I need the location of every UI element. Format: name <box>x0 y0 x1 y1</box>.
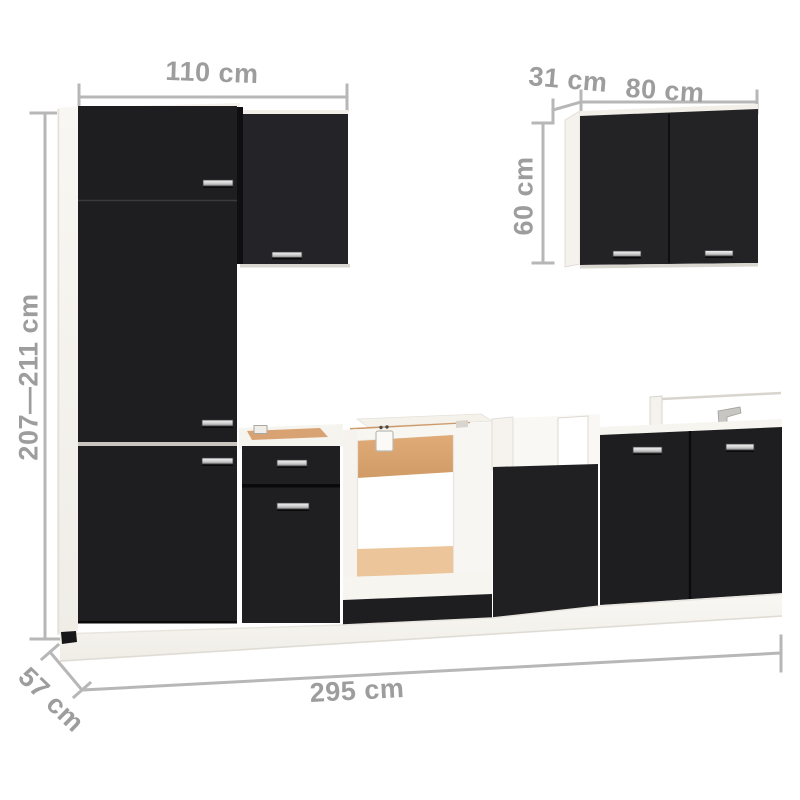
clip-screw <box>379 426 382 429</box>
upper-cabinet-bottom-edge <box>240 264 350 268</box>
handle-shadow <box>277 467 307 469</box>
clip-screw <box>385 425 388 428</box>
appliance-cabinet-left-post <box>492 417 513 470</box>
carcass-side-panel <box>558 416 588 468</box>
upper-cabinet <box>237 107 350 268</box>
dimension-label-tall-width: 110 cm <box>165 56 259 90</box>
door-handle <box>277 503 309 509</box>
handle-shadow <box>633 454 662 456</box>
handle-shadow <box>272 258 302 260</box>
oven-housing-cabinet <box>343 414 492 625</box>
handle-shadow <box>613 257 641 259</box>
dimension-label-wall-width: 80 cm <box>624 73 705 109</box>
tall-cabinet-bottom-shadow <box>78 621 237 624</box>
drawer-handle <box>277 460 307 466</box>
dimension-label-wall-height: 60 cm <box>509 156 540 235</box>
assembly-clip <box>376 431 393 451</box>
adjustable-foot <box>61 631 77 644</box>
assembly-bracket <box>254 426 267 434</box>
appliance-front-panel <box>493 464 598 618</box>
appliance-panel-cabinet <box>492 414 600 618</box>
door-handle <box>272 252 302 258</box>
oven-housing-wood-panel-bottom <box>357 546 453 577</box>
drawer-base-cabinet <box>239 424 343 623</box>
door-handle <box>203 180 233 186</box>
sink-cabinet-back-rail <box>662 393 781 399</box>
handle-shadow <box>202 427 233 429</box>
door-handle <box>202 458 233 464</box>
oven-housing-left-stile <box>343 429 357 594</box>
drawer-door-gap <box>242 484 340 488</box>
upper-cabinet-side-return <box>237 107 243 264</box>
tall-cabinet <box>57 103 240 635</box>
handle-shadow <box>705 257 733 259</box>
sink-base-cabinet <box>600 393 782 605</box>
sink-cabinet-back-post <box>650 396 662 429</box>
dimension-label-tall-height: 207—211 cm <box>14 293 45 460</box>
assembly-bracket <box>456 420 468 428</box>
door-handle <box>202 420 233 426</box>
dimension-label-total-width: 295 cm <box>309 673 405 709</box>
product-dimension-diagram: 110 cm 31 cm 80 cm 60 cm 207—211 cm 57 c… <box>0 0 800 800</box>
door-handle <box>613 251 641 257</box>
door-handle <box>633 447 662 453</box>
handle-shadow <box>277 510 309 512</box>
handle-shadow <box>202 465 233 467</box>
wall-cabinet-side-panel <box>565 111 580 267</box>
upper-cabinet-door <box>243 114 348 264</box>
tall-cabinet-door-gap <box>78 442 237 446</box>
wall-cabinet <box>565 104 758 269</box>
oven-housing-right-stile <box>453 422 492 592</box>
door-handle <box>726 444 754 450</box>
handle-shadow <box>203 187 233 189</box>
handle-shadow <box>726 451 754 453</box>
door-handle <box>705 251 733 257</box>
oven-housing-wood-panel-top <box>357 435 453 478</box>
tall-cabinet-side-panel <box>57 106 78 635</box>
